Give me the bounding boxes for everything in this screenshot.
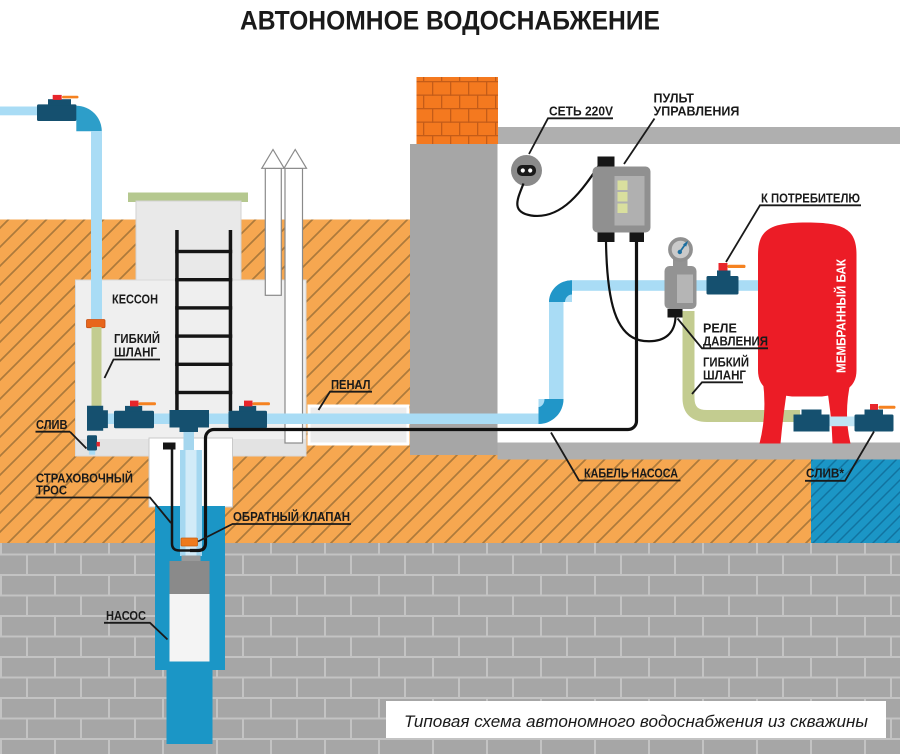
svg-text:ПУЛЬТ: ПУЛЬТ <box>654 92 695 106</box>
svg-text:ШЛАНГ: ШЛАНГ <box>114 346 157 360</box>
svg-text:МЕМБРАННЫЙ БАК: МЕМБРАННЫЙ БАК <box>834 259 849 373</box>
svg-text:К ПОТРЕБИТЕЛЮ: К ПОТРЕБИТЕЛЮ <box>761 192 860 206</box>
svg-text:РЕЛЕ: РЕЛЕ <box>703 322 737 336</box>
svg-text:ТРОС: ТРОС <box>36 484 67 498</box>
svg-text:ОБРАТНЫЙ КЛАПАН: ОБРАТНЫЙ КЛАПАН <box>233 509 350 524</box>
svg-text:АВТОНОМНОЕ ВОДОСНАБЖЕНИЕ: АВТОНОМНОЕ ВОДОСНАБЖЕНИЕ <box>240 6 660 36</box>
svg-text:НАСОС: НАСОС <box>106 609 146 623</box>
svg-text:ШЛАНГ: ШЛАНГ <box>703 369 746 383</box>
svg-text:СЛИВ*: СЛИВ* <box>806 467 844 481</box>
svg-text:КЕССОН: КЕССОН <box>112 293 158 307</box>
svg-text:УПРАВЛЕНИЯ: УПРАВЛЕНИЯ <box>654 105 740 119</box>
svg-text:ДАВЛЕНИЯ: ДАВЛЕНИЯ <box>703 335 768 349</box>
svg-text:СЛИВ: СЛИВ <box>36 418 68 432</box>
svg-text:ГИБКИЙ: ГИБКИЙ <box>703 355 749 370</box>
svg-text:СЕТЬ 220V: СЕТЬ 220V <box>549 105 614 119</box>
svg-text:Типовая схема автономного водо: Типовая схема автономного водоснабжения … <box>404 712 868 731</box>
svg-text:КАБЕЛЬ НАСОСА: КАБЕЛЬ НАСОСА <box>584 467 678 481</box>
svg-text:ГИБКИЙ: ГИБКИЙ <box>114 331 160 346</box>
svg-text:ПЕНАЛ: ПЕНАЛ <box>331 378 371 392</box>
